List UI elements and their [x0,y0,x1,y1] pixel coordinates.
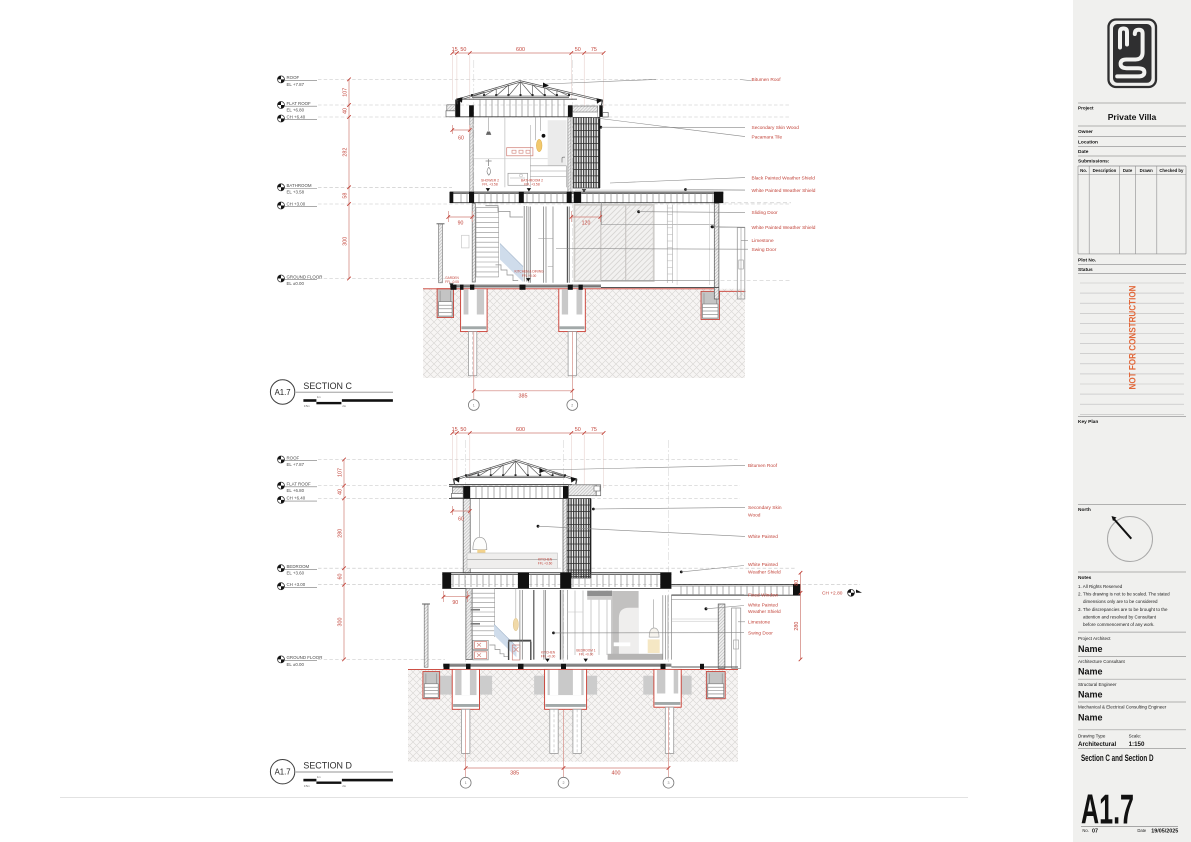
svg-text:75: 75 [591,427,597,433]
svg-text:50: 50 [575,427,581,433]
svg-text:CH +6.40: CH +6.40 [287,114,306,119]
svg-text:40: 40 [338,489,344,495]
svg-text:Architectural: Architectural [1078,741,1116,748]
svg-text:15: 15 [452,47,458,53]
svg-text:80: 80 [794,580,800,586]
svg-text:A1.7: A1.7 [275,768,291,777]
svg-text:50: 50 [460,427,466,433]
svg-text:FLAT ROOF: FLAT ROOF [287,481,312,486]
svg-text:Fixed Window: Fixed Window [748,592,779,598]
svg-text:FFL +0.00: FFL +0.00 [579,653,594,657]
svg-text:Submissions:: Submissions: [1078,159,1110,165]
svg-text:2: 2 [571,403,573,407]
svg-text:EL +6.80: EL +6.80 [287,488,305,493]
svg-text:ROOF: ROOF [287,455,300,460]
svg-text:600: 600 [516,47,525,53]
svg-text:Name: Name [1078,689,1103,699]
svg-text:White Painted: White Painted [748,562,778,568]
svg-text:Architecture Consultant: Architecture Consultant [1078,659,1126,664]
svg-text:CH +3.00: CH +3.00 [287,582,306,587]
svg-text:90: 90 [458,221,464,227]
svg-text:dimensions only are to be cons: dimensions only are to be considered [1083,599,1158,604]
svg-text:300: 300 [342,237,348,246]
svg-text:before commencement of any wor: before commencement of any work. [1083,622,1155,627]
svg-text:2m: 2m [342,784,346,788]
svg-text:Swing Door: Swing Door [752,247,777,253]
svg-text:2. This drawing is not to be s: 2. This drawing is not to be scaled. The… [1078,592,1170,597]
svg-text:60: 60 [458,136,464,142]
svg-text:CH +2.80: CH +2.80 [822,591,843,597]
svg-text:SECTION C: SECTION C [303,381,352,392]
svg-text:SECTION D: SECTION D [303,761,352,772]
svg-text:Weather Shield: Weather Shield [748,609,781,615]
svg-text:Name: Name [1078,644,1103,654]
svg-text:Description: Description [1093,168,1117,173]
svg-text:BATHROOM: BATHROOM [287,183,312,188]
svg-text:50: 50 [575,47,581,53]
svg-text:120: 120 [582,221,591,227]
svg-text:385: 385 [519,393,528,399]
svg-text:Limestone: Limestone [748,620,770,626]
svg-text:North: North [1078,507,1091,513]
svg-text:1m: 1m [317,395,321,399]
svg-text:FFL +3.60: FFL +3.60 [538,562,553,566]
svg-text:Scale:: Scale: [1129,733,1142,738]
svg-text:White Painted Weather Shield: White Painted Weather Shield [752,188,816,194]
svg-text:CH +6.40: CH +6.40 [287,496,306,501]
svg-text:75: 75 [591,47,597,53]
svg-text:19/05/2025: 19/05/2025 [1151,828,1178,834]
svg-text:BEDROOM: BEDROOM [287,564,310,569]
svg-text:Mechanical & Electrical Consul: Mechanical & Electrical Consulting Engin… [1078,705,1167,710]
svg-text:282: 282 [343,148,349,157]
svg-text:Pacamara Tile: Pacamara Tile [752,134,783,140]
svg-text:attention and resolved by Cons: attention and resolved by Consultant [1083,614,1157,619]
svg-text:EL +3.58: EL +3.58 [287,190,305,195]
svg-text:15: 15 [452,427,458,433]
svg-text:A1.7: A1.7 [275,388,291,397]
svg-text:3. The discrepancies are to be: 3. The discrepancies are to be brought t… [1078,607,1168,612]
svg-text:EL +7.87: EL +7.87 [287,82,305,87]
svg-text:Checked by: Checked by [1159,168,1184,173]
svg-text:GROUND FLOOR: GROUND FLOOR [287,655,323,660]
svg-text:Name: Name [1078,667,1103,677]
svg-text:280: 280 [338,529,344,538]
svg-text:Sliding Door: Sliding Door [752,210,779,216]
svg-text:Secondary Skin: Secondary Skin [748,505,782,511]
svg-text:EL ±0.00: EL ±0.00 [287,662,305,667]
svg-text:FFL +0.00: FFL +0.00 [522,274,537,278]
svg-text:Drawing Type: Drawing Type [1078,733,1106,738]
svg-text:Location: Location [1078,140,1098,146]
svg-text:Plot No.: Plot No. [1078,258,1096,264]
svg-text:ROOF: ROOF [287,75,300,80]
svg-text:58: 58 [343,193,349,199]
svg-text:EL +7.87: EL +7.87 [287,462,305,467]
svg-text:Notes: Notes [1078,575,1092,581]
svg-text:1: 1 [465,781,467,785]
svg-text:No.: No. [1080,168,1087,173]
svg-text:400: 400 [612,771,621,777]
svg-text:Date: Date [1123,168,1133,173]
svg-text:Weather Shield: Weather Shield [748,569,781,575]
svg-text:Wood: Wood [748,512,761,518]
svg-text:EL +6.80: EL +6.80 [287,107,305,112]
svg-text:40: 40 [343,108,349,114]
svg-text:Structural Engineer: Structural Engineer [1078,682,1117,687]
svg-text:2: 2 [563,781,565,785]
svg-text:1. All Rights Reserved: 1. All Rights Reserved [1078,584,1123,589]
svg-text:White Painted: White Painted [748,534,778,540]
svg-text:Project Architect: Project Architect [1078,636,1111,641]
svg-text:A1.7: A1.7 [1081,785,1134,832]
svg-text:EL +3.60: EL +3.60 [287,571,305,576]
svg-text:60: 60 [458,517,464,523]
svg-text:Date: Date [1078,149,1089,155]
svg-text:3: 3 [668,781,670,785]
svg-text:300: 300 [337,618,343,627]
svg-text:Drawn: Drawn [1140,168,1154,173]
svg-text:FFL +3.58: FFL +3.58 [524,183,540,187]
svg-text:1: 1 [473,403,475,407]
svg-text:0.5m: 0.5m [304,404,310,408]
svg-text:NOT FOR CONSTRUCTION: NOT FOR CONSTRUCTION [1127,285,1138,389]
svg-text:No.: No. [1082,828,1089,833]
svg-text:FFL +3.58: FFL +3.58 [482,183,498,187]
svg-text:Secondary Skin Wood: Secondary Skin Wood [752,125,800,131]
svg-text:Date: Date [1137,828,1147,833]
svg-text:Limestone: Limestone [752,238,774,244]
svg-text:2m: 2m [342,404,346,408]
svg-text:Owner: Owner [1078,129,1093,135]
svg-text:CH +3.00: CH +3.00 [287,201,306,206]
svg-text:Status: Status [1078,267,1093,273]
svg-text:07: 07 [1092,828,1098,834]
svg-text:1m: 1m [317,775,321,779]
svg-text:0.5m: 0.5m [304,784,310,788]
svg-text:Black Painted Weather Shield: Black Painted Weather Shield [752,175,816,181]
svg-text:FLAT ROOF: FLAT ROOF [287,101,312,106]
svg-text:90: 90 [452,600,458,606]
svg-text:EL ±0.00: EL ±0.00 [287,281,305,286]
svg-text:107: 107 [343,88,349,97]
svg-text:50: 50 [460,47,466,53]
svg-text:White Painted: White Painted [748,602,778,608]
svg-text:Key Plan: Key Plan [1078,419,1098,425]
svg-text:GROUND FLOOR: GROUND FLOOR [287,274,323,279]
svg-text:Swing Door: Swing Door [748,631,773,637]
svg-text:280: 280 [794,622,800,631]
svg-text:Bitumen Roof: Bitumen Roof [752,77,782,83]
svg-text:Bitumen Roof: Bitumen Roof [748,463,778,469]
svg-text:Section C and Section D: Section C and Section D [1081,753,1154,763]
svg-text:107: 107 [338,468,344,477]
svg-text:FFL +0.00: FFL +0.00 [541,655,556,659]
svg-text:Private Villa: Private Villa [1108,112,1157,122]
svg-text:Name: Name [1078,712,1103,722]
svg-text:60: 60 [338,573,344,579]
svg-text:Project: Project [1078,106,1094,111]
svg-text:1:150: 1:150 [1129,741,1145,748]
svg-text:385: 385 [510,771,519,777]
svg-text:600: 600 [516,427,525,433]
svg-text:White Painted Weather Shield: White Painted Weather Shield [752,225,816,231]
